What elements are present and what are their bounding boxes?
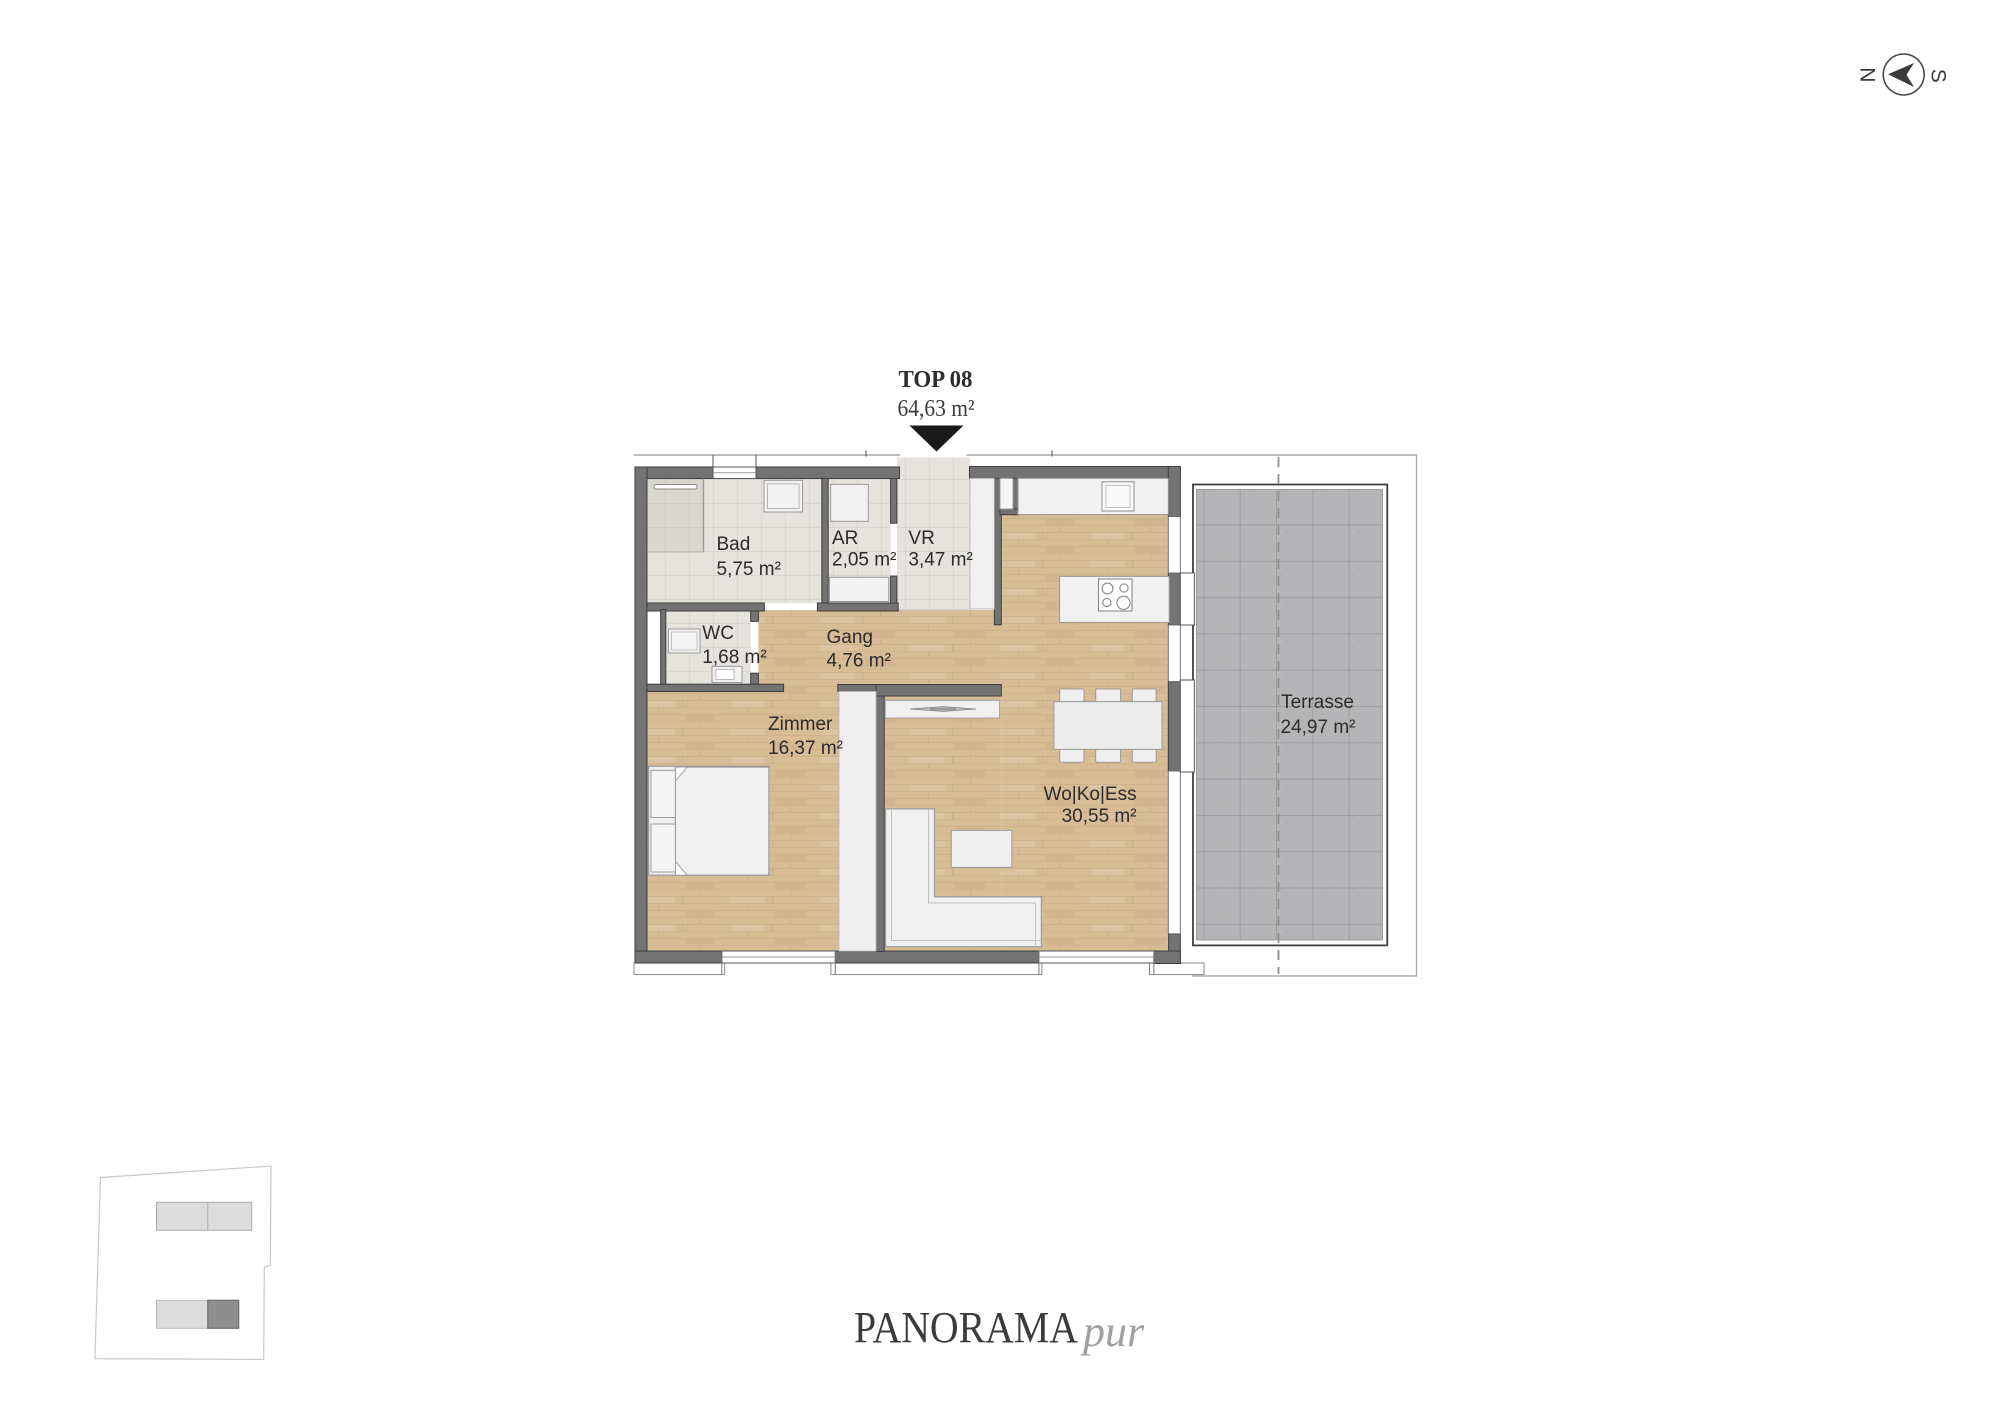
svg-text:3,47 m²: 3,47 m² bbox=[908, 550, 972, 571]
svg-text:VR: VR bbox=[908, 528, 934, 549]
svg-text:Terrasse: Terrasse bbox=[1281, 692, 1354, 713]
svg-text:Gang: Gang bbox=[827, 627, 873, 648]
svg-text:30,55 m²: 30,55 m² bbox=[1062, 806, 1137, 827]
svg-text:PANORAMA: PANORAMA bbox=[854, 1303, 1078, 1352]
svg-text:Bad: Bad bbox=[717, 534, 751, 555]
svg-text:5,75 m²: 5,75 m² bbox=[717, 559, 781, 580]
svg-text:TOP 08: TOP 08 bbox=[899, 367, 973, 393]
svg-text:2,05 m²: 2,05 m² bbox=[832, 550, 896, 571]
svg-text:64,63 m²: 64,63 m² bbox=[898, 396, 975, 422]
svg-text:16,37 m²: 16,37 m² bbox=[768, 738, 843, 759]
svg-text:WC: WC bbox=[702, 623, 734, 644]
svg-text:AR: AR bbox=[832, 528, 858, 549]
svg-text:4,76 m²: 4,76 m² bbox=[827, 651, 891, 672]
svg-text:Zimmer: Zimmer bbox=[768, 714, 833, 735]
svg-text:pur: pur bbox=[1080, 1307, 1145, 1356]
svg-text:Wo|Ko|Ess: Wo|Ko|Ess bbox=[1044, 784, 1137, 805]
svg-text:S: S bbox=[1926, 69, 1949, 83]
svg-text:24,97 m²: 24,97 m² bbox=[1281, 717, 1356, 738]
svg-text:N: N bbox=[1856, 67, 1879, 82]
svg-text:1,68 m²: 1,68 m² bbox=[702, 647, 766, 668]
